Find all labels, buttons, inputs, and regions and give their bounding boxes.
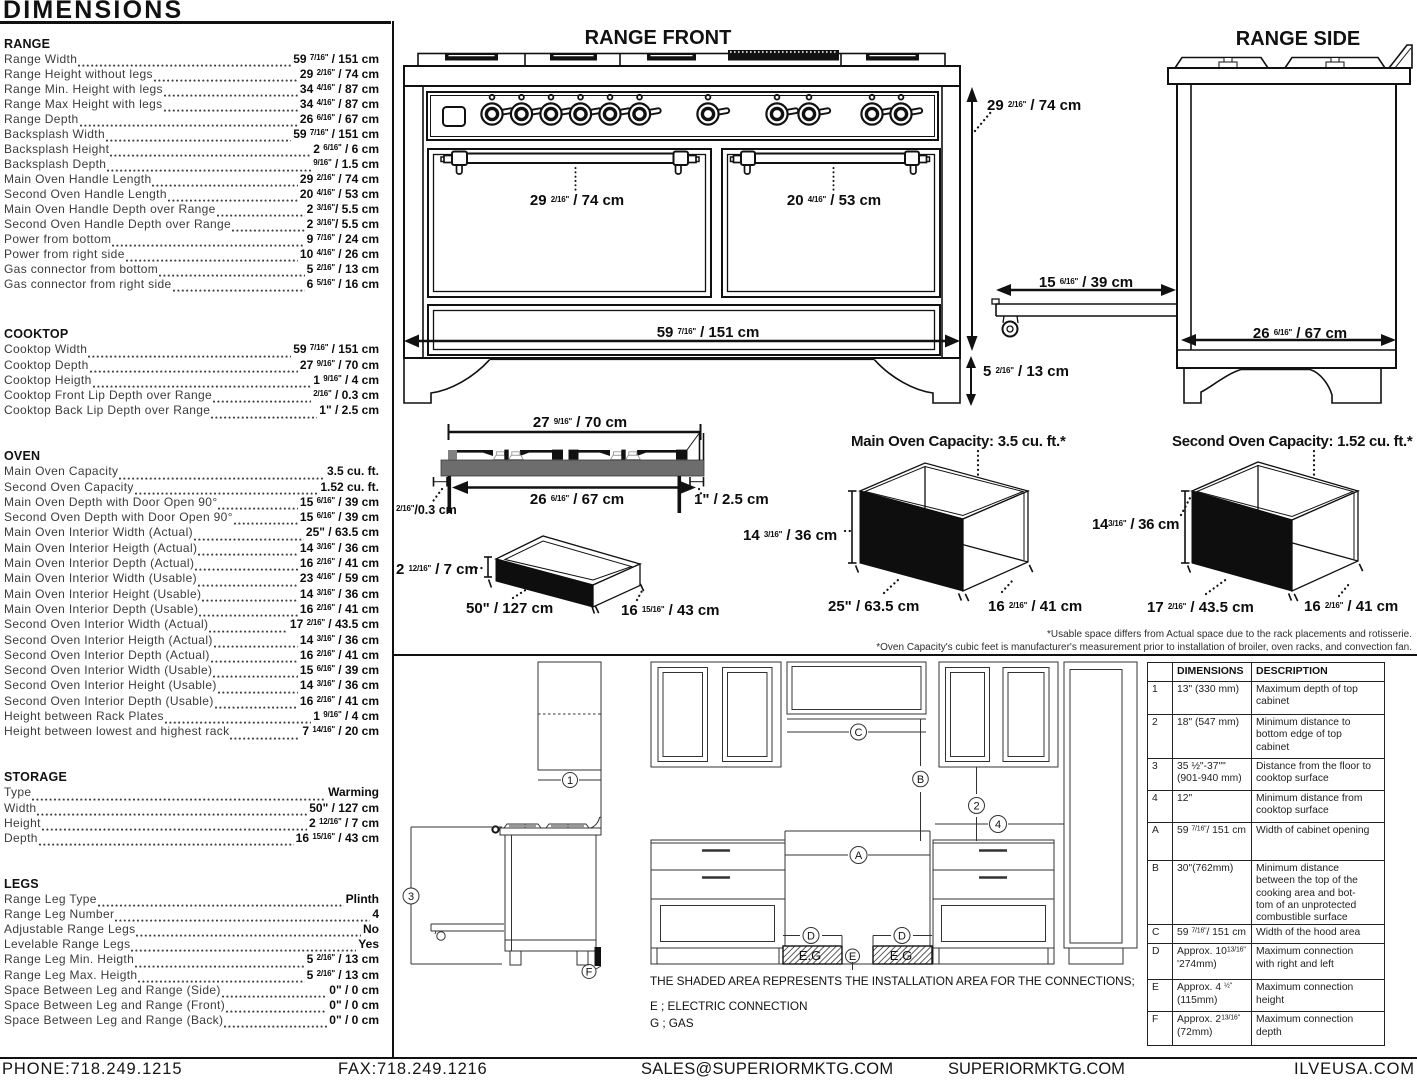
svg-text:C: C [855,727,863,739]
svg-text:E.G: E.G [799,948,821,963]
svg-text:B: B [917,774,924,786]
svg-text:4: 4 [995,819,1001,831]
svg-text:F: F [586,967,593,979]
svg-text:2: 2 [973,801,979,813]
svg-text:1: 1 [567,775,573,787]
svg-text:D: D [807,931,815,943]
svg-text:3: 3 [408,891,414,903]
svg-text:A: A [855,850,863,862]
svg-text:E: E [849,951,856,963]
svg-text:E.G: E.G [890,948,912,963]
svg-text:D: D [898,931,906,943]
